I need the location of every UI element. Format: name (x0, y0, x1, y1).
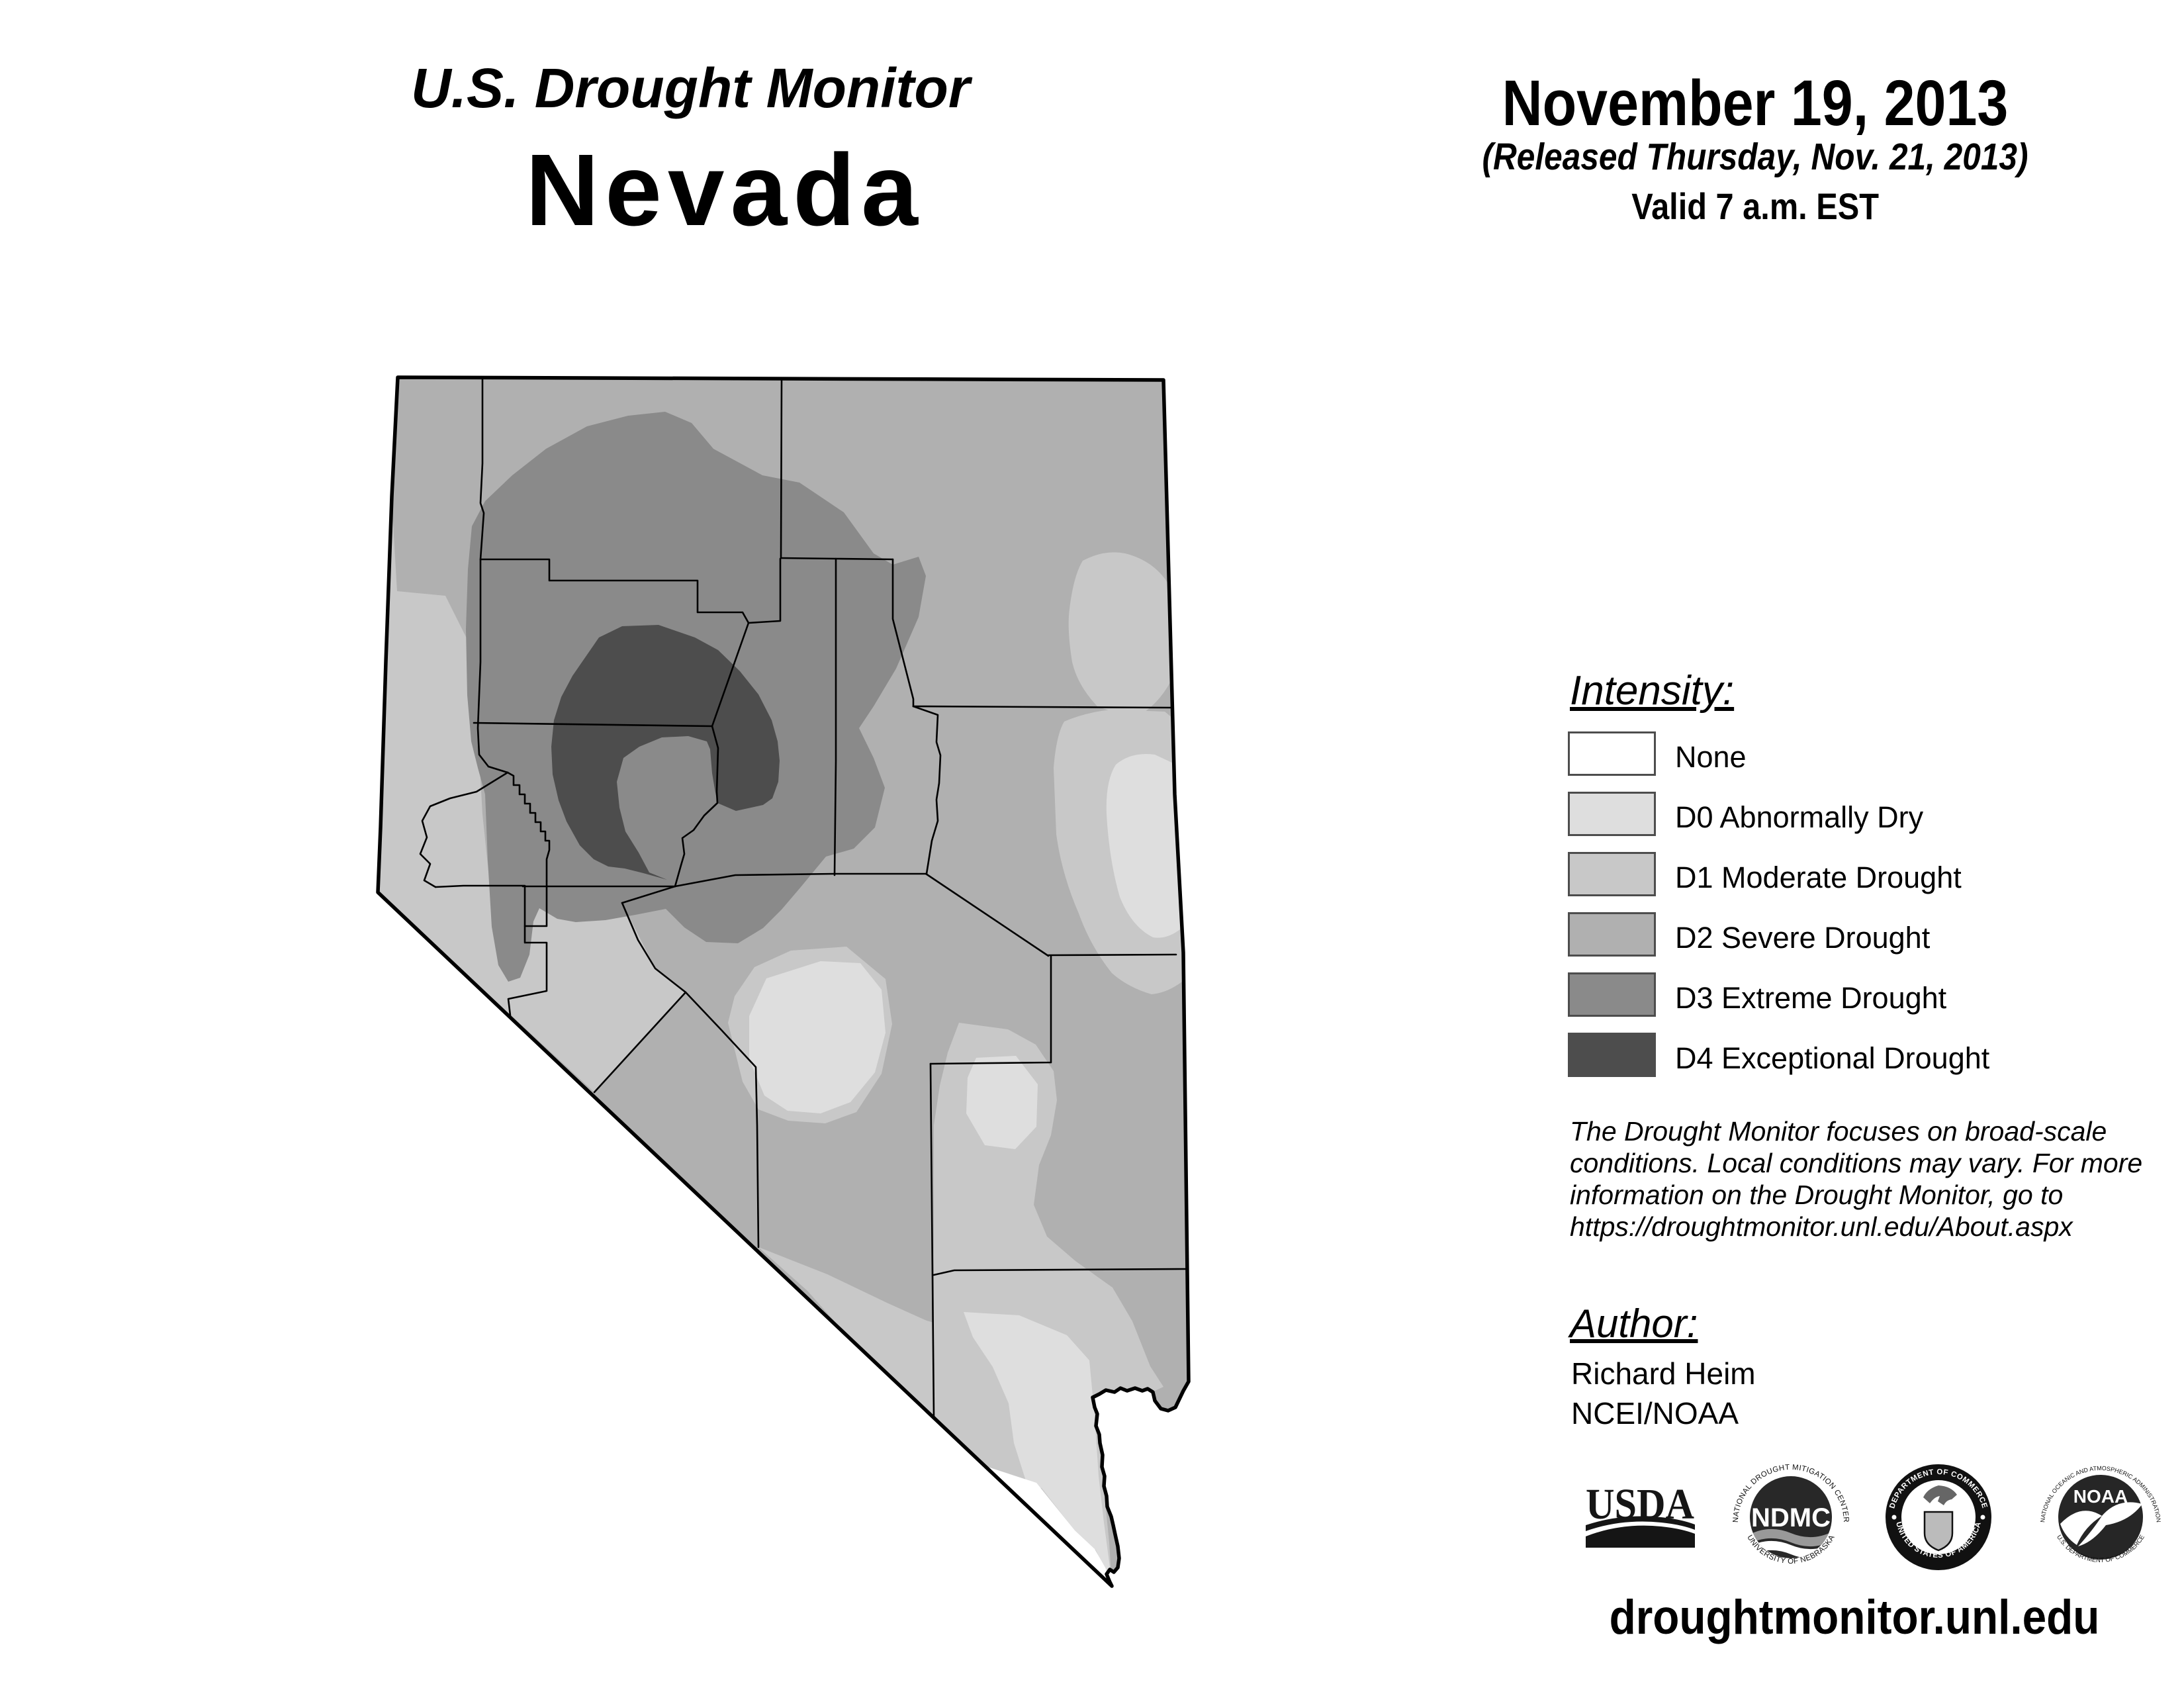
svg-text:NDMC: NDMC (1751, 1503, 1831, 1532)
svg-text:NOAA: NOAA (2073, 1486, 2128, 1507)
